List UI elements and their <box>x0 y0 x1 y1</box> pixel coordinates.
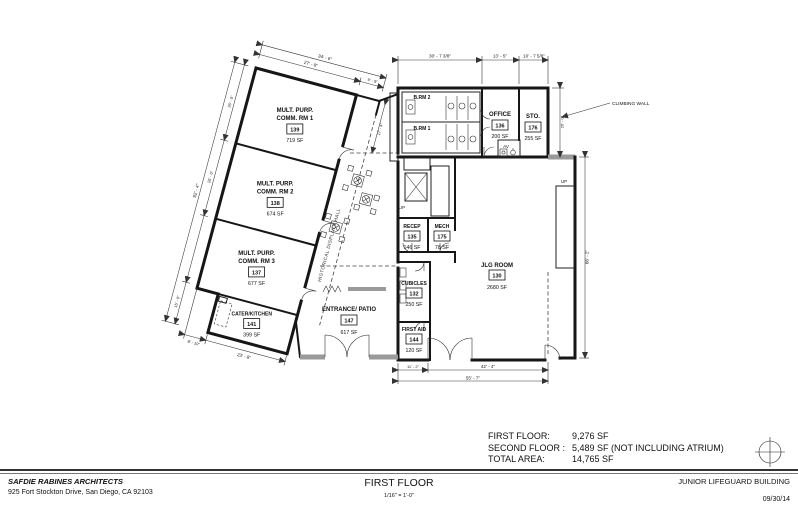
rotated-wing: HISTORICAL DISPLAYS HALL MULT. PURP. COM… <box>155 31 397 378</box>
summary-value: 5,489 SF (NOT INCLUDING ATRIUM) <box>572 443 724 455</box>
dim-east-main: 66' - 2" <box>585 250 590 265</box>
svg-text:144: 144 <box>409 338 419 344</box>
dim-kitchen-jog: 8' - 10" <box>187 339 201 347</box>
room-label-brm2: B.RM 2 <box>414 95 431 101</box>
svg-text:399 SF: 399 SF <box>243 333 261 339</box>
room-label-kitchen: CATER/KITCHEN 141 399 SF <box>231 312 272 339</box>
room-label-office: OFFICE 136 200 SF <box>489 112 511 140</box>
dim-wing-left-total: 92' - 4" <box>192 183 201 198</box>
up-label-atrium: UP <box>399 205 405 210</box>
kitchen-equipment <box>214 301 232 327</box>
svg-text:135: 135 <box>407 235 416 241</box>
svg-text:719 SF: 719 SF <box>286 138 304 144</box>
svg-text:255 SF: 255 SF <box>524 136 542 142</box>
svg-text:STO.: STO. <box>526 114 540 120</box>
dim-bottom-total: 55' - 7" <box>466 376 481 381</box>
svg-text:175: 175 <box>437 235 446 241</box>
summary-label: SECOND FLOOR : <box>488 443 572 455</box>
svg-text:COMM. RM 1: COMM. RM 1 <box>277 116 314 122</box>
stair-upper <box>404 158 430 170</box>
climbing-wall-label: CLIMBING WALL <box>612 101 650 107</box>
room-label-jlg: JLG ROOM 130 2680 SF <box>481 263 513 291</box>
dim-top2: 13' - 5" <box>493 54 508 59</box>
dim-bottom1: 11' - 2" <box>407 364 420 369</box>
title-block: SAFDIE RABINES ARCHITECTS 925 Fort Stock… <box>0 474 798 509</box>
summary-value: 14,765 SF <box>572 454 614 466</box>
drawing-sheet: HISTORICAL DISPLAYS HALL MULT. PURP. COM… <box>0 0 798 509</box>
dim-wing-gap: 17' - 4" <box>376 122 384 136</box>
dim-bottom2: 42' - 4" <box>481 364 496 369</box>
svg-text:OFFICE: OFFICE <box>489 112 511 118</box>
svg-text:ENTRANCE/ PATIO: ENTRANCE/ PATIO <box>322 307 376 313</box>
svg-text:COMM. RM 3: COMM. RM 3 <box>238 259 275 265</box>
svg-text:139: 139 <box>290 127 299 133</box>
dim-wing-top-inner: 27' - 8" <box>303 60 318 69</box>
bathroom-fixtures <box>406 96 476 150</box>
summary-row: FIRST FLOOR: 9,276 SF <box>488 431 724 443</box>
dim-top3: 10' - 7 5/8" <box>523 54 545 59</box>
svg-text:COMM. RM 2: COMM. RM 2 <box>257 189 294 195</box>
svg-text:674 SF: 674 SF <box>267 211 285 217</box>
svg-text:CATER/KITCHEN: CATER/KITCHEN <box>231 312 272 318</box>
svg-text:120 SF: 120 SF <box>405 348 423 354</box>
north-arrow-icon <box>755 437 785 467</box>
summary-label: TOTAL AREA: <box>488 454 572 466</box>
svg-text:JLG ROOM: JLG ROOM <box>481 263 513 269</box>
patio-doors <box>325 335 369 357</box>
svg-text:147: 147 <box>344 319 353 325</box>
planting <box>323 286 341 292</box>
entry-door-jlg <box>545 345 560 360</box>
entry-doors-main <box>428 338 472 360</box>
svg-text:MECH: MECH <box>435 224 450 230</box>
svg-text:176: 176 <box>528 126 537 132</box>
summary-label: FIRST FLOOR: <box>488 431 572 443</box>
svg-text:FIRST AID: FIRST AID <box>402 327 427 333</box>
room-label-cubicles: CUBICLES 132 250 SF <box>401 281 427 308</box>
floor-plan: HISTORICAL DISPLAYS HALL MULT. PURP. COM… <box>0 0 798 470</box>
svg-text:141: 141 <box>247 322 256 328</box>
dim-top1: 30' - 7 3/8" <box>429 54 451 59</box>
av-fixtures <box>500 148 515 156</box>
av-closet <box>498 140 520 157</box>
dim-east-upper: 26' - 0" <box>560 115 565 128</box>
svg-text:78 SF: 78 SF <box>435 245 450 251</box>
up-label-east: UP <box>561 179 567 184</box>
svg-text:RECEP: RECEP <box>403 224 421 230</box>
room-label-recep: RECEP 135 146 SF <box>403 224 421 251</box>
svg-text:2680 SF: 2680 SF <box>487 285 508 291</box>
room-label-mech: MECH 175 78 SF <box>434 224 450 251</box>
summary-value: 9,276 SF <box>572 431 609 443</box>
summary-row: SECOND FLOOR : 5,489 SF (NOT INCLUDING A… <box>488 443 724 455</box>
room-label-brm1: B.RM 1 <box>414 126 431 132</box>
title-block-rule <box>0 469 798 471</box>
display-wall-dashed <box>320 115 376 326</box>
svg-text:138: 138 <box>271 201 280 207</box>
svg-text:136: 136 <box>495 124 504 130</box>
svg-text:250 SF: 250 SF <box>405 302 423 308</box>
area-summary: FIRST FLOOR: 9,276 SF SECOND FLOOR : 5,4… <box>488 431 724 466</box>
room-label-storage: STO. 176 255 SF <box>524 114 542 142</box>
svg-text:200 SF: 200 SF <box>491 134 509 140</box>
svg-text:MULT. PURP.: MULT. PURP. <box>238 251 275 257</box>
room-label-mp3: MULT. PURP. COMM. RM 3 137 677 SF <box>238 251 275 287</box>
svg-text:MULT. PURP.: MULT. PURP. <box>277 108 314 114</box>
av-label: AV <box>503 144 510 149</box>
stair-atrium <box>431 166 449 216</box>
svg-text:130: 130 <box>492 274 501 280</box>
room-label-mp2: MULT. PURP. COMM. RM 2 138 674 SF <box>257 181 294 217</box>
svg-text:137: 137 <box>252 270 261 276</box>
svg-text:MULT. PURP.: MULT. PURP. <box>257 181 294 187</box>
svg-text:677 SF: 677 SF <box>248 281 266 287</box>
svg-text:146 SF: 146 SF <box>403 245 421 251</box>
dim-kitchen-bottom: 23' - 8" <box>236 352 251 361</box>
room-label-entrance: ENTRANCE/ PATIO 147 617 SF <box>322 307 376 336</box>
project-name: JUNIOR LIFEGUARD BUILDING <box>678 477 790 486</box>
dim-wing-top-outer: 34' - 6" <box>318 53 333 62</box>
room-label-first-aid: FIRST AID 144 120 SF <box>402 327 427 354</box>
svg-text:132: 132 <box>409 292 418 298</box>
stair-east <box>556 186 574 268</box>
svg-text:CUBICLES: CUBICLES <box>401 281 427 287</box>
sheet-date: 09/30/14 <box>678 496 790 503</box>
room-label-mp1: MULT. PURP. COMM. RM 1 139 719 SF <box>277 108 314 144</box>
summary-row: TOTAL AREA: 14,765 SF <box>488 454 724 466</box>
svg-text:617 SF: 617 SF <box>340 330 358 336</box>
dim-wing-corridor: 6' - 9" <box>367 77 379 85</box>
